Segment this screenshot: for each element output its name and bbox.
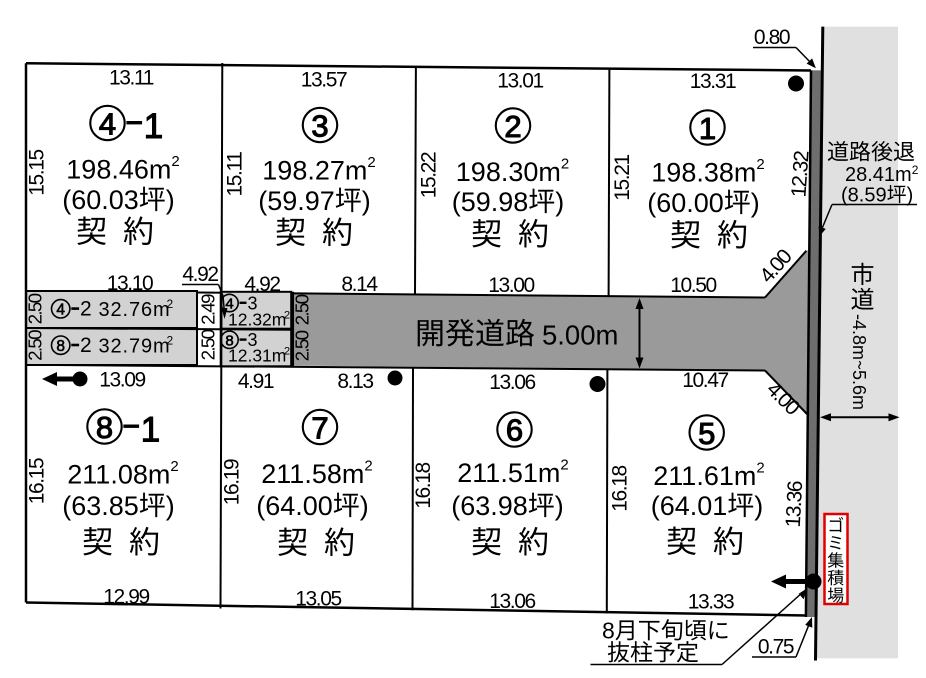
svg-text:13.06: 13.06 (489, 371, 535, 394)
svg-text:2: 2 (504, 109, 521, 144)
svg-text:契約: 契約 (471, 517, 549, 562)
svg-text:8.14: 8.14 (341, 273, 378, 296)
svg-text:4.92: 4.92 (182, 263, 218, 286)
svg-text:1: 1 (144, 107, 163, 146)
svg-text:16.15: 16.15 (26, 458, 49, 504)
svg-text:0.75: 0.75 (758, 636, 794, 659)
svg-text:15.21: 15.21 (611, 155, 634, 201)
svg-text:開発道路: 開発道路 (415, 309, 535, 353)
svg-text:道: 道 (851, 280, 875, 315)
svg-text:15.11: 15.11 (224, 152, 247, 197)
svg-text:2.50: 2.50 (292, 294, 313, 325)
svg-text:7: 7 (311, 410, 328, 445)
svg-text:5.00m: 5.00m (542, 320, 618, 351)
svg-text:6: 6 (506, 412, 523, 447)
svg-text:2: 2 (284, 310, 290, 322)
svg-text:契約: 契約 (666, 517, 744, 562)
svg-text:4.91: 4.91 (238, 370, 274, 393)
svg-text:4: 4 (56, 301, 65, 318)
svg-text:2.49: 2.49 (198, 294, 219, 325)
svg-text:10.50: 10.50 (670, 274, 716, 297)
svg-text:4: 4 (99, 106, 116, 141)
svg-text:10.47: 10.47 (682, 369, 728, 392)
svg-text:16.19: 16.19 (221, 459, 244, 505)
svg-text:1: 1 (141, 410, 160, 449)
svg-text:13.10: 13.10 (107, 272, 153, 295)
svg-text:32.79m: 32.79m (99, 336, 171, 358)
svg-text:契約: 契約 (82, 517, 160, 562)
svg-text:1: 1 (699, 111, 716, 146)
svg-text:13.36: 13.36 (782, 481, 807, 528)
svg-text:2.50: 2.50 (25, 293, 46, 324)
svg-text:2.50: 2.50 (292, 330, 313, 361)
svg-text:場: 場 (827, 582, 844, 607)
svg-text:0.80: 0.80 (754, 26, 790, 49)
svg-text:8: 8 (96, 410, 113, 445)
svg-text:道路後退: 道路後退 (827, 135, 915, 167)
svg-text:3: 3 (311, 108, 328, 143)
svg-text:8: 8 (56, 338, 65, 355)
svg-text:8.13: 8.13 (337, 370, 373, 393)
svg-text:12.32: 12.32 (787, 150, 813, 198)
svg-text:2.50: 2.50 (25, 330, 46, 361)
svg-text:16.18: 16.18 (412, 463, 435, 509)
svg-text:13.11: 13.11 (109, 66, 154, 89)
svg-text:15.15: 15.15 (26, 150, 49, 196)
svg-text:13.06: 13.06 (489, 590, 535, 613)
svg-text:2: 2 (80, 334, 92, 357)
svg-text:16.18: 16.18 (609, 466, 632, 512)
svg-text:2.50: 2.50 (198, 329, 219, 360)
svg-text:2: 2 (167, 297, 174, 311)
svg-text:12.99: 12.99 (103, 586, 149, 609)
svg-text:28.41m2: 28.41m2 (845, 163, 919, 186)
svg-text:-4.8m~5.6m: -4.8m~5.6m (847, 314, 873, 410)
svg-text:契約: 契約 (277, 518, 355, 563)
svg-text:12.32m: 12.32m (228, 310, 286, 330)
svg-text:13.09: 13.09 (99, 369, 145, 392)
svg-text:5: 5 (698, 416, 715, 451)
svg-text:13.31: 13.31 (690, 70, 736, 93)
svg-text:2: 2 (167, 334, 174, 348)
svg-text:2: 2 (80, 298, 92, 321)
svg-text:2: 2 (284, 346, 290, 358)
svg-text:13.01: 13.01 (497, 70, 543, 93)
svg-text:13.33: 13.33 (688, 591, 734, 614)
svg-text:12.31m: 12.31m (228, 346, 286, 366)
svg-text:13.57: 13.57 (301, 69, 347, 92)
svg-text:13.00: 13.00 (488, 274, 534, 297)
svg-text:13.05: 13.05 (295, 588, 341, 611)
svg-text:15.22: 15.22 (418, 152, 441, 198)
svg-text:32.76m: 32.76m (99, 299, 171, 321)
svg-text:抜柱予定: 抜柱予定 (607, 634, 699, 668)
